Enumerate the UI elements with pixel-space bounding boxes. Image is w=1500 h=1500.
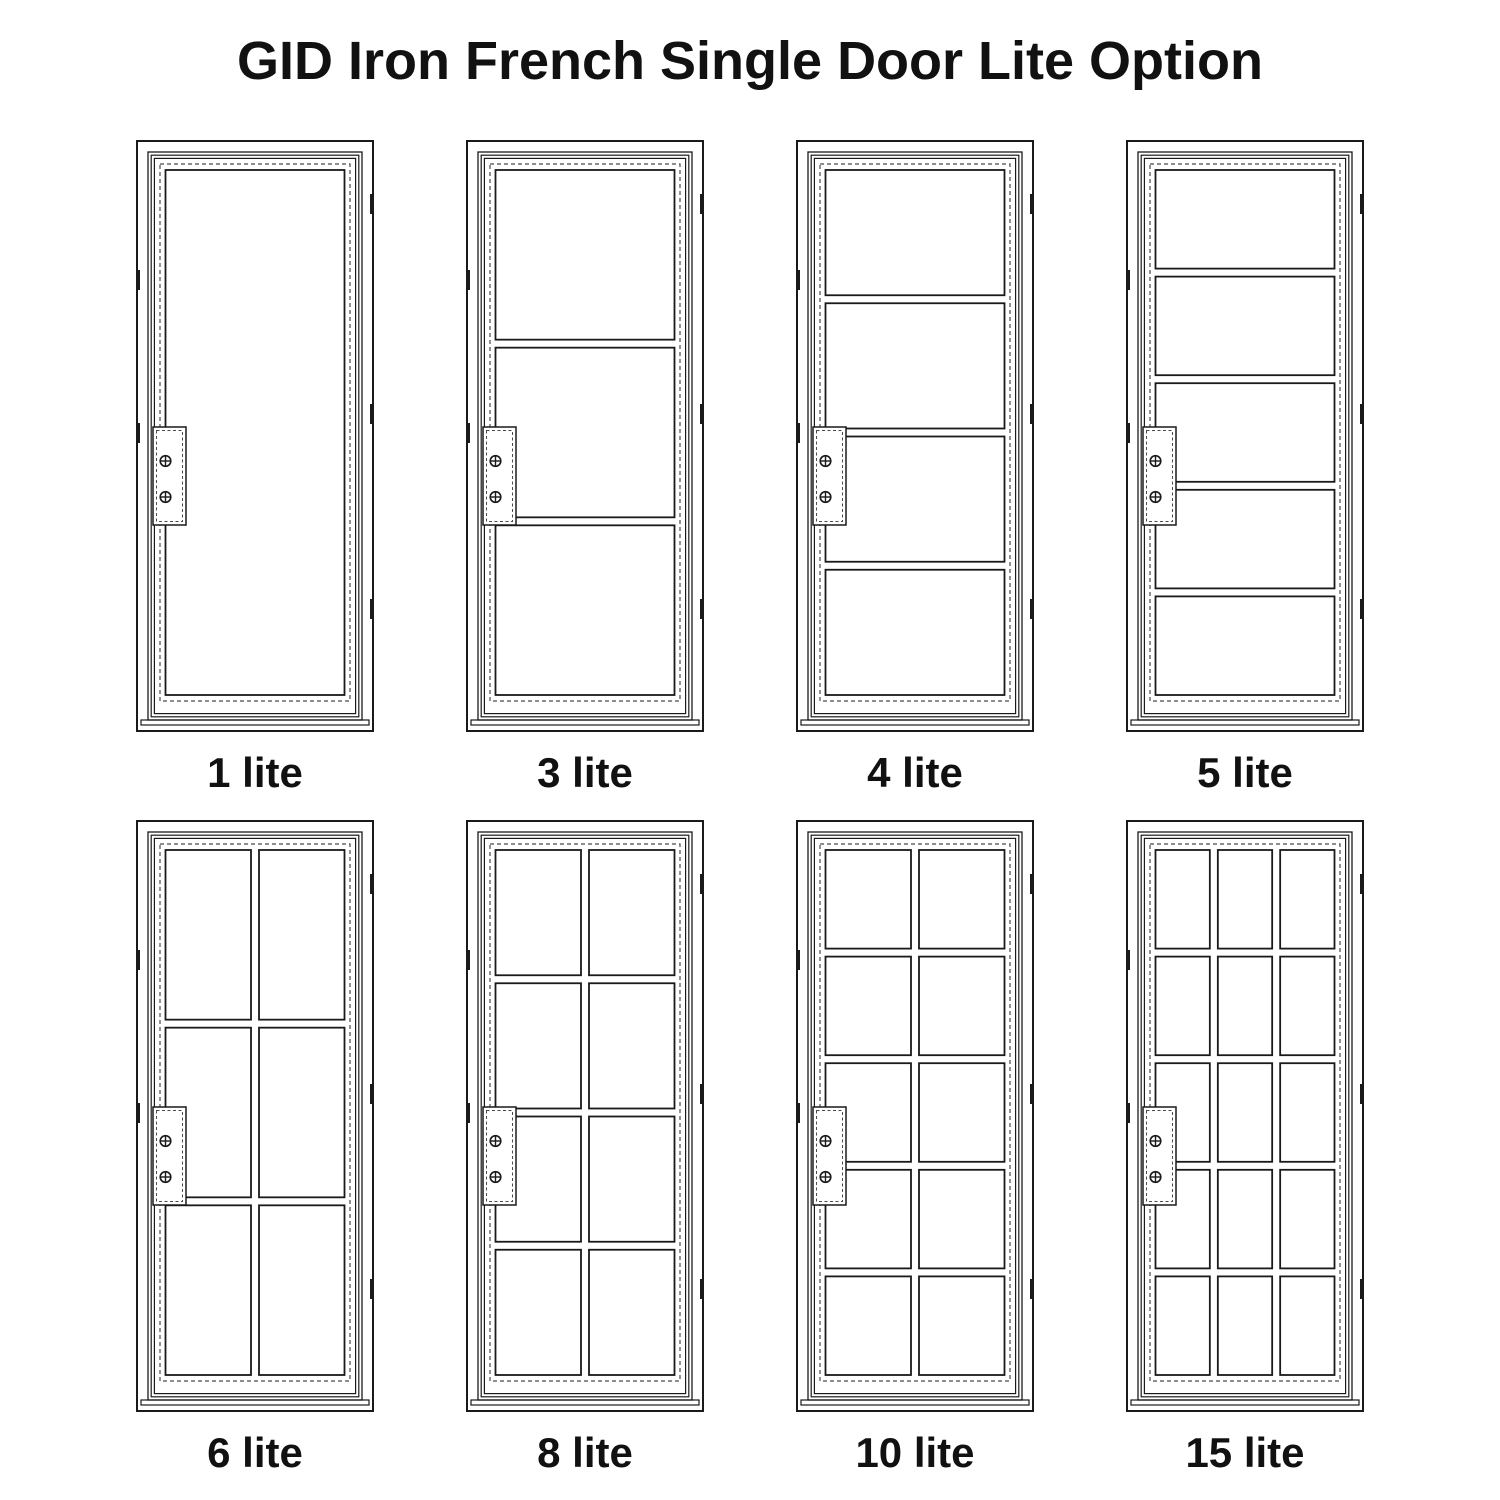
door-figure — [466, 820, 704, 1412]
door-figure — [796, 820, 1034, 1412]
lock-plate — [153, 427, 186, 525]
door-diagram — [466, 820, 704, 1412]
screw-icon — [1150, 492, 1161, 503]
door-option-5-lite: 5 lite — [1080, 140, 1410, 798]
screw-icon — [160, 456, 171, 467]
lock-plate — [153, 1107, 186, 1205]
door-diagram — [466, 140, 704, 732]
screw-icon — [160, 492, 171, 503]
screw-icon — [490, 1136, 501, 1147]
door-label: 3 lite — [537, 748, 633, 798]
screw-icon — [1150, 1136, 1161, 1147]
screw-icon — [820, 1136, 831, 1147]
screw-icon — [160, 1136, 171, 1147]
door-figure — [466, 140, 704, 732]
door-figure — [136, 820, 374, 1412]
screw-icon — [1150, 1172, 1161, 1183]
screw-icon — [820, 492, 831, 503]
door-label: 5 lite — [1197, 748, 1293, 798]
door-diagram — [1126, 140, 1364, 732]
door-diagram — [136, 140, 374, 732]
screw-icon — [820, 1172, 831, 1183]
door-label: 1 lite — [207, 748, 303, 798]
lock-plate — [483, 1107, 516, 1205]
lock-plate — [483, 427, 516, 525]
screw-icon — [1150, 456, 1161, 467]
door-option-8-lite: 8 lite — [420, 820, 750, 1478]
door-grid: 1 lite3 lite4 lite5 lite6 lite8 lite10 l… — [0, 140, 1500, 1478]
door-label: 8 lite — [537, 1428, 633, 1478]
door-option-4-lite: 4 lite — [750, 140, 1080, 798]
door-diagram — [796, 820, 1034, 1412]
door-option-1-lite: 1 lite — [90, 140, 420, 798]
lock-plate — [813, 1107, 846, 1205]
door-option-10-lite: 10 lite — [750, 820, 1080, 1478]
screw-icon — [490, 492, 501, 503]
door-figure — [1126, 140, 1364, 732]
lock-plate — [813, 427, 846, 525]
door-label: 10 lite — [855, 1428, 974, 1478]
door-diagram — [1126, 820, 1364, 1412]
door-figure — [796, 140, 1034, 732]
door-option-15-lite: 15 lite — [1080, 820, 1410, 1478]
screw-icon — [490, 1172, 501, 1183]
door-label: 15 lite — [1185, 1428, 1304, 1478]
door-label: 6 lite — [207, 1428, 303, 1478]
door-label: 4 lite — [867, 748, 963, 798]
door-option-6-lite: 6 lite — [90, 820, 420, 1478]
lock-plate — [1143, 427, 1176, 525]
door-figure — [136, 140, 374, 732]
door-figure — [1126, 820, 1364, 1412]
screw-icon — [490, 456, 501, 467]
door-diagram — [796, 140, 1034, 732]
lock-plate — [1143, 1107, 1176, 1205]
screw-icon — [160, 1172, 171, 1183]
door-option-3-lite: 3 lite — [420, 140, 750, 798]
page: GID Iron French Single Door Lite Option … — [0, 0, 1500, 1500]
page-title: GID Iron French Single Door Lite Option — [0, 30, 1500, 92]
door-diagram — [136, 820, 374, 1412]
screw-icon — [820, 456, 831, 467]
